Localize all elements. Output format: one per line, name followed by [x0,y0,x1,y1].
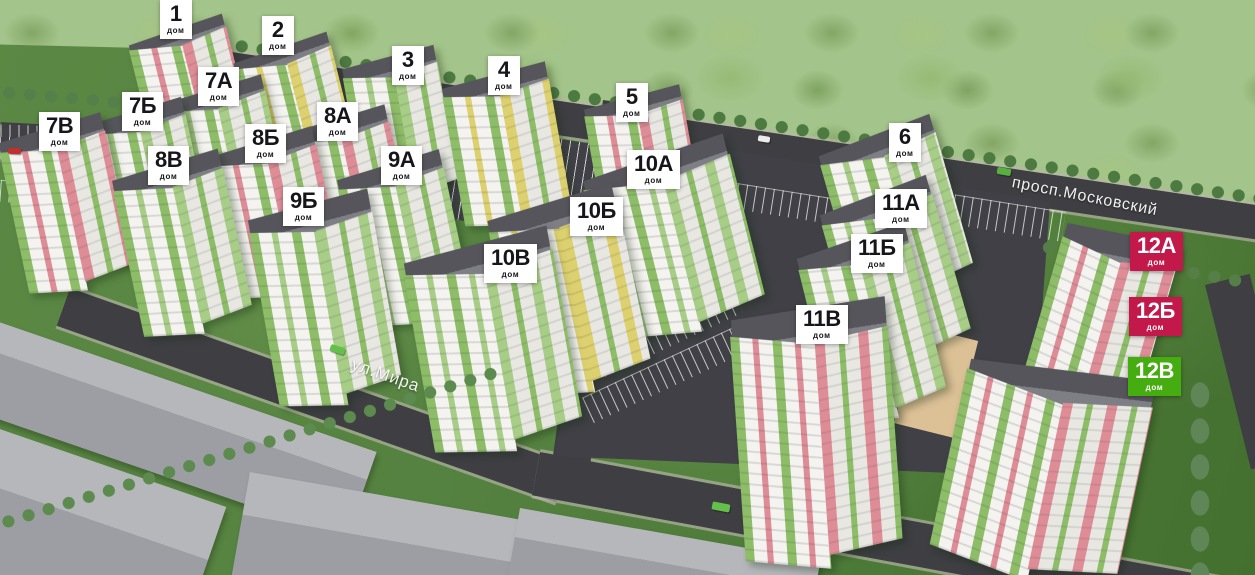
house-label-2[interactable]: 2дом [262,16,294,55]
house-word: дом [896,149,914,158]
car-icon [8,148,21,154]
house-label-10a[interactable]: 10Адом [627,150,680,189]
house-label-11v[interactable]: 11Вдом [796,305,848,344]
house-label-5[interactable]: 5дом [616,83,648,122]
house-label-10v[interactable]: 10Вдом [484,244,537,283]
house-number: 8Б [252,127,279,149]
house-number: 3 [402,49,414,71]
house-word: дом [393,172,411,181]
house-number: 4 [498,59,510,81]
house-number: 5 [626,86,638,108]
house-label-11a[interactable]: 11Адом [875,189,927,228]
house-label-9b[interactable]: 9Бдом [283,187,324,226]
house-number: 8А [324,105,351,127]
house-word: дом [329,128,347,137]
house-label-7b[interactable]: 7Бдом [122,92,163,131]
house-number: 12В [1135,360,1174,382]
house-label-4[interactable]: 4дом [488,56,520,95]
house-label-7a[interactable]: 7Адом [198,67,239,106]
house-word: дом [813,331,831,340]
house-word: дом [495,82,513,91]
house-word: дом [295,213,313,222]
house-label-10b[interactable]: 10Бдом [570,197,623,236]
house-label-8b[interactable]: 8Бдом [245,124,286,163]
house-label-12b[interactable]: 12Бдом [1129,297,1182,336]
house-number: 11Б [858,237,896,259]
building-12-lower[interactable] [929,350,1156,575]
house-label-7v[interactable]: 7Вдом [39,112,80,151]
house-number: 8В [155,149,182,171]
house-label-12v[interactable]: 12Вдом [1128,357,1181,396]
house-number: 10А [634,153,673,175]
masterplan-scene: ул.Мира просп.Московский 1дом 2дом 3дом … [0,0,1255,575]
house-label-8v[interactable]: 8Вдом [148,146,189,185]
house-word: дом [868,260,886,269]
house-number: 2 [272,19,284,41]
house-word: дом [1146,383,1164,392]
house-word: дом [269,42,287,51]
house-word: дом [502,270,520,279]
house-label-8a[interactable]: 8Адом [317,102,358,141]
house-label-3[interactable]: 3дом [392,46,424,85]
building-facade [814,325,902,554]
house-word: дом [588,223,606,232]
house-word: дом [134,118,152,127]
house-word: дом [623,109,641,118]
house-number: 6 [899,126,911,148]
tree-column [1186,378,1214,575]
house-number: 11А [882,192,920,214]
house-word: дом [1147,323,1165,332]
house-word: дом [51,138,69,147]
house-number: 9А [388,149,415,171]
house-label-11b[interactable]: 11Бдом [851,234,903,273]
house-number: 11В [803,308,841,330]
house-word: дом [892,215,910,224]
house-word: дом [645,176,663,185]
house-number: 10В [491,247,530,269]
house-number: 7Б [129,95,156,117]
house-word: дом [399,72,417,81]
house-word: дом [210,93,228,102]
house-word: дом [167,26,185,35]
house-word: дом [257,150,275,159]
house-word: дом [160,172,178,181]
house-label-1[interactable]: 1дом [160,0,192,39]
house-number: 12А [1137,235,1176,257]
house-word: дом [1148,258,1166,267]
house-number: 10Б [577,200,616,222]
house-number: 7В [46,115,73,137]
house-label-9a[interactable]: 9Адом [381,146,422,185]
house-label-6[interactable]: 6дом [889,123,921,162]
house-number: 1 [170,3,182,25]
house-label-12a[interactable]: 12Адом [1130,232,1183,271]
house-number: 7А [205,70,232,92]
house-number: 12Б [1136,300,1175,322]
house-number: 9Б [290,190,317,212]
